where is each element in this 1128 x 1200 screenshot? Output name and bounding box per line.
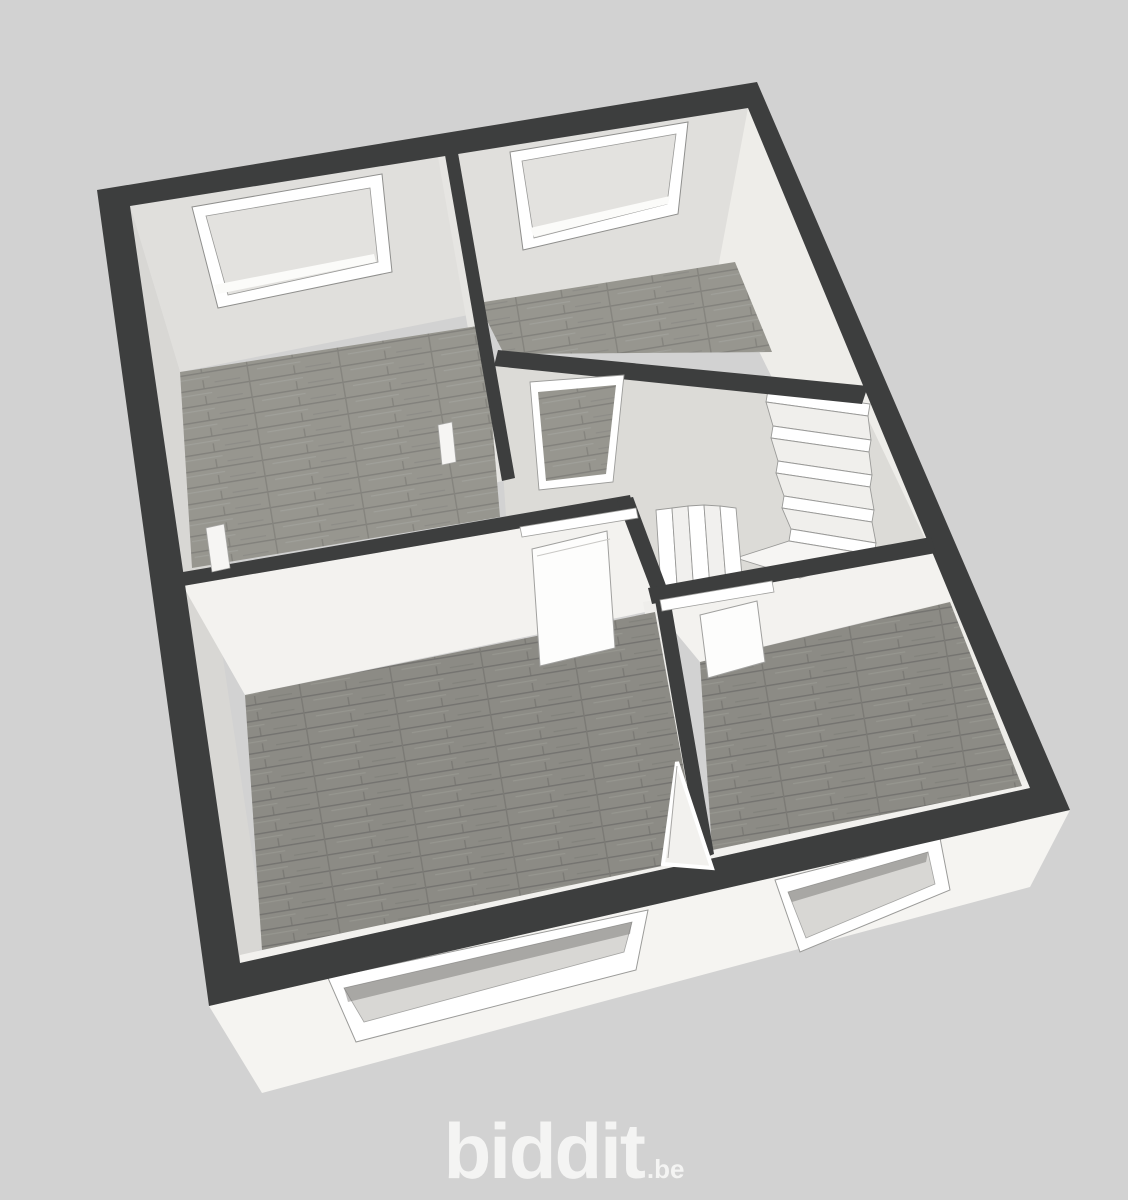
- door-to-top-center-room: [530, 375, 624, 490]
- floorplan-page: biddit .be: [0, 0, 1128, 1200]
- open-door-leaf: [532, 531, 615, 666]
- biddit-logo-tld: .be: [647, 1156, 685, 1182]
- biddit-logo-text: biddit: [444, 1112, 644, 1190]
- biddit-logo: biddit .be: [0, 1112, 1128, 1190]
- floorplan-render: [0, 0, 1128, 1200]
